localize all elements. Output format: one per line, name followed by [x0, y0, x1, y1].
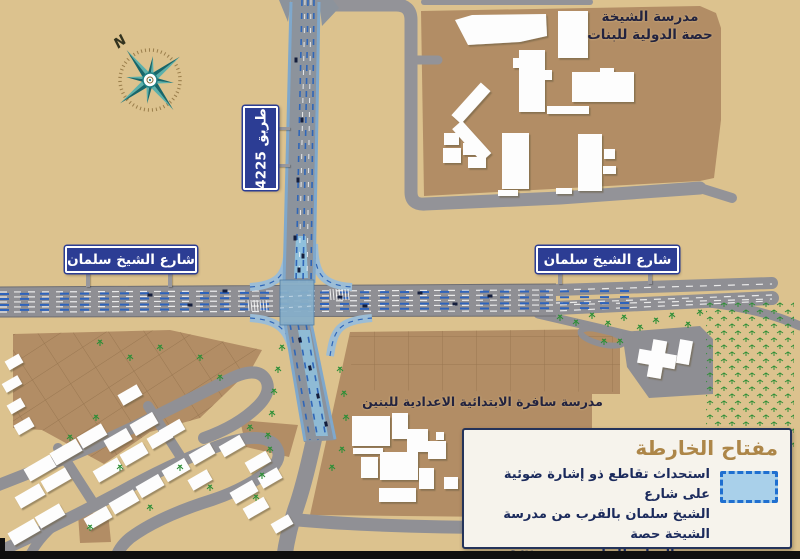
- girls-school-label-line2: حصة الدولية للبنات: [575, 27, 725, 45]
- car: [148, 294, 153, 297]
- street-sign-sheikh-salman-left: شارع الشيخ سلمان: [65, 246, 197, 273]
- car: [188, 304, 193, 307]
- vacant-lots-grid: [350, 329, 620, 392]
- girls-school-label-line1: مدرسة الشيخة: [575, 9, 725, 27]
- girls-school-label: مدرسة الشيخة حصة الدولية للبنات: [575, 9, 725, 44]
- legend-line-2: الشيخ سلمان بالقرب من مدرسة الشيخة حصة: [474, 505, 710, 545]
- building: [443, 148, 461, 163]
- building: [419, 468, 434, 489]
- building: [604, 149, 615, 159]
- car: [338, 296, 343, 299]
- building: [407, 429, 428, 452]
- building: [519, 50, 545, 112]
- building: [352, 416, 390, 446]
- car: [298, 268, 301, 273]
- building: [380, 452, 418, 480]
- car: [418, 292, 423, 295]
- car: [302, 254, 305, 259]
- building: [361, 457, 378, 478]
- legend-item-text: استحداث تقاطع ذو إشارة ضوئية على شارع ال…: [474, 465, 710, 559]
- building: [603, 166, 616, 174]
- building: [513, 58, 520, 68]
- building: [502, 133, 529, 189]
- legend-item: استحداث تقاطع ذو إشارة ضوئية على شارع ال…: [464, 462, 790, 559]
- street-sign-text: طريق 4225: [245, 108, 276, 188]
- building: [600, 68, 614, 73]
- building: [498, 190, 518, 196]
- street-sign-sheikh-salman-right: شارع الشيخ سلمان: [536, 246, 679, 273]
- building: [353, 448, 383, 454]
- building: [547, 106, 589, 114]
- legend-title: مفتاح الخارطة: [464, 430, 790, 462]
- signalized-intersection: [280, 280, 314, 325]
- building: [379, 488, 416, 502]
- street-sign-text: شارع الشيخ سلمان: [544, 252, 672, 268]
- car: [453, 303, 458, 306]
- car: [223, 290, 228, 293]
- building: [578, 134, 602, 191]
- street-sign-text: شارع الشيخ سلمان: [67, 252, 195, 268]
- building: [444, 133, 459, 145]
- map-border-strip: [0, 538, 5, 559]
- building: [545, 70, 552, 80]
- building: [436, 432, 444, 440]
- legend-line-1: استحداث تقاطع ذو إشارة ضوئية على شارع: [474, 465, 710, 505]
- car: [294, 236, 297, 241]
- boys-school-label: مدرسة سافرة الابتدائية الاعدادية للبنين: [360, 394, 605, 410]
- building: [463, 143, 476, 155]
- car: [295, 58, 298, 63]
- map-canvas: N شارع الشيخ سلمان شارع الشيخ سلمان طريق…: [0, 0, 800, 559]
- building: [392, 413, 408, 439]
- car: [363, 305, 368, 308]
- street-sign-road-4225: طريق 4225: [243, 106, 278, 190]
- building: [556, 188, 572, 194]
- building: [468, 157, 486, 168]
- car: [488, 295, 493, 298]
- dashed-blue-rectangle-icon: [720, 471, 778, 503]
- building: [428, 441, 446, 459]
- car: [297, 178, 300, 183]
- building: [444, 477, 458, 489]
- building: [572, 72, 634, 102]
- map-border-strip: [0, 551, 800, 559]
- car: [301, 118, 304, 123]
- map-legend: مفتاح الخارطة استحداث تقاطع ذو إشارة ضوئ…: [462, 428, 792, 549]
